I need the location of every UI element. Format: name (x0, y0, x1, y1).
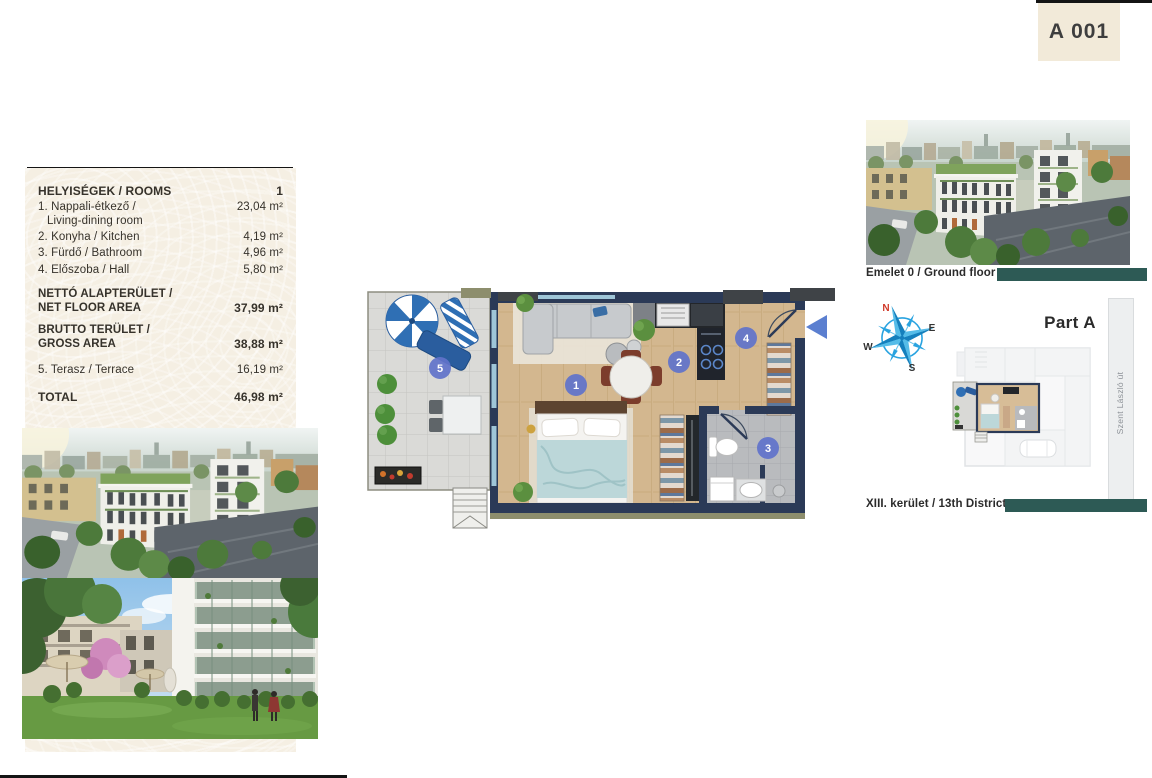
hall-wardrobe (767, 343, 791, 415)
table-row: 2. Konyha / Kitchen 4,19 m² (38, 231, 283, 245)
gross-label-line2: GROSS AREA (38, 338, 116, 350)
wardrobe (660, 415, 684, 501)
gross-area-row: BRUTTO TERÜLET / GROSS AREA 38,88 m² (38, 324, 283, 352)
street-strip: Szent László út (1108, 298, 1134, 505)
total-row: TOTAL 46,98 m² (38, 390, 283, 404)
net-area-row: NETTÓ ALAPTERÜLET / NET FLOOR AREA 37,99… (38, 288, 283, 316)
net-label-line1: NETTÓ ALAPTERÜLET / (38, 288, 172, 300)
row-label: 4. Előszoba / Hall (38, 264, 129, 278)
district-caption: XIII. kerület / 13th District (866, 497, 1006, 511)
rooms-table-header: HELYISÉGEK / ROOMS 1 (38, 184, 283, 198)
gross-label-line1: BRUTTO TERÜLET / (38, 324, 150, 336)
row-label: 1. Nappali-étkező / (38, 201, 136, 213)
toilet (709, 437, 738, 457)
row-area: 4,19 m² (243, 231, 283, 245)
exterior-stairs (453, 488, 487, 528)
bath-sink (736, 479, 766, 501)
table-row: 1. Nappali-étkező / Living-dining room 2… (38, 201, 283, 229)
marker-hall-number: 4 (743, 333, 750, 345)
bbq-grill (375, 467, 421, 484)
unit-number: 1 (276, 184, 283, 198)
table-row: 3. Fürdő / Bathroom 4,96 m² (38, 247, 283, 261)
bathroom-bin (773, 485, 785, 497)
compass-east-label: E (929, 323, 936, 334)
marker-terrace-number: 5 (437, 363, 443, 375)
site-mini-plan (945, 340, 1115, 480)
unit-code-label: A 001 (1049, 20, 1109, 44)
ground-floor-caption: Emelet 0 / Ground floor (866, 266, 995, 280)
terrace-row: 5. Terasz / Terrace 16,19 m² (38, 364, 283, 378)
terrace-label: 5. Terasz / Terrace (38, 364, 134, 378)
rooms-title: HELYISÉGEK / ROOMS (38, 184, 171, 198)
courtyard-render-photo (22, 578, 318, 739)
ground-floor-photo (866, 120, 1130, 265)
row-label: 2. Konyha / Kitchen (38, 231, 140, 245)
washing-machine (710, 477, 734, 501)
teal-bar-top (997, 268, 1147, 281)
total-label: TOTAL (38, 390, 77, 404)
row-area: 5,80 m² (243, 264, 283, 278)
terrace-area: 16,19 m² (237, 364, 283, 378)
net-area: 37,99 m² (234, 301, 283, 315)
row-label: 3. Fürdő / Bathroom (38, 247, 142, 261)
gross-area: 38,88 m² (234, 337, 283, 351)
floor-plan: 1 2 3 4 5 (365, 288, 835, 534)
brochure-page: { "unit_badge": { "label": "A 001" }, "r… (0, 0, 1152, 778)
table-row: 4. Előszoba / Hall 5,80 m² (38, 264, 283, 278)
street-label: Szent László út (1115, 310, 1127, 496)
compass-south-label: S (909, 363, 916, 374)
marker-living-number: 1 (573, 380, 579, 392)
compass-rose: N E W S (862, 295, 952, 385)
garage-car (1020, 440, 1056, 457)
row-area: 23,04 m² (237, 201, 283, 215)
compass-north-label: N (882, 303, 889, 314)
teal-bar-bottom (1005, 499, 1147, 512)
row-label-sub: Living-dining room (38, 215, 143, 227)
compass-west-label: W (863, 342, 873, 353)
rooms-table: HELYISÉGEK / ROOMS 1 1. Nappali-étkező /… (25, 168, 296, 405)
net-label-line2: NET FLOOR AREA (38, 302, 141, 314)
entrance-arrow-icon (806, 315, 827, 339)
aerial-render-photo (22, 428, 318, 578)
marker-kitchen-number: 2 (676, 357, 682, 369)
total-area: 46,98 m² (234, 390, 283, 404)
row-area: 4,96 m² (243, 247, 283, 261)
bed (527, 401, 628, 503)
marker-bathroom-number: 3 (765, 443, 771, 455)
unit-code-badge: A 001 (1038, 3, 1120, 61)
